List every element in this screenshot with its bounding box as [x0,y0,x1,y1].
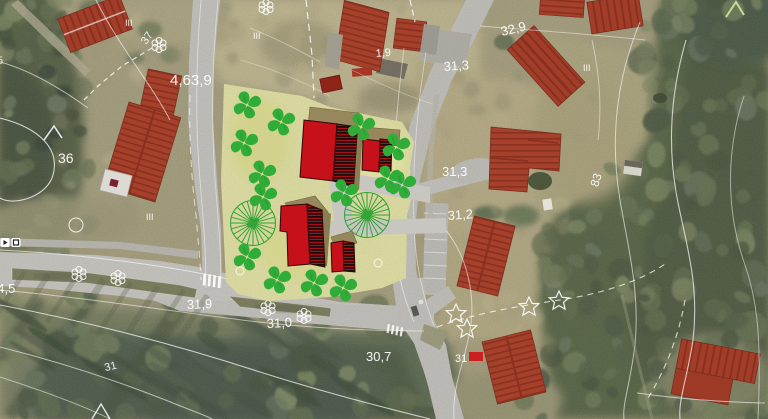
svg-text:31,9: 31,9 [187,296,213,312]
svg-text:4,63,9: 4,63,9 [170,72,212,89]
svg-text:36: 36 [58,150,74,166]
svg-text:III: III [253,31,261,41]
svg-text:34,5: 34,5 [0,281,15,296]
svg-text:III: III [583,63,591,73]
svg-text:30,7: 30,7 [366,349,391,364]
svg-text:III: III [146,212,154,222]
svg-text:III: III [125,18,133,28]
svg-text:31,2: 31,2 [447,206,473,223]
svg-text:1,9: 1,9 [375,47,391,60]
svg-text:31,3: 31,3 [442,164,467,179]
svg-text:31: 31 [455,353,467,365]
svg-text:5: 5 [0,55,3,67]
svg-text:31,0: 31,0 [266,315,292,331]
svg-text:31,3: 31,3 [443,57,469,74]
